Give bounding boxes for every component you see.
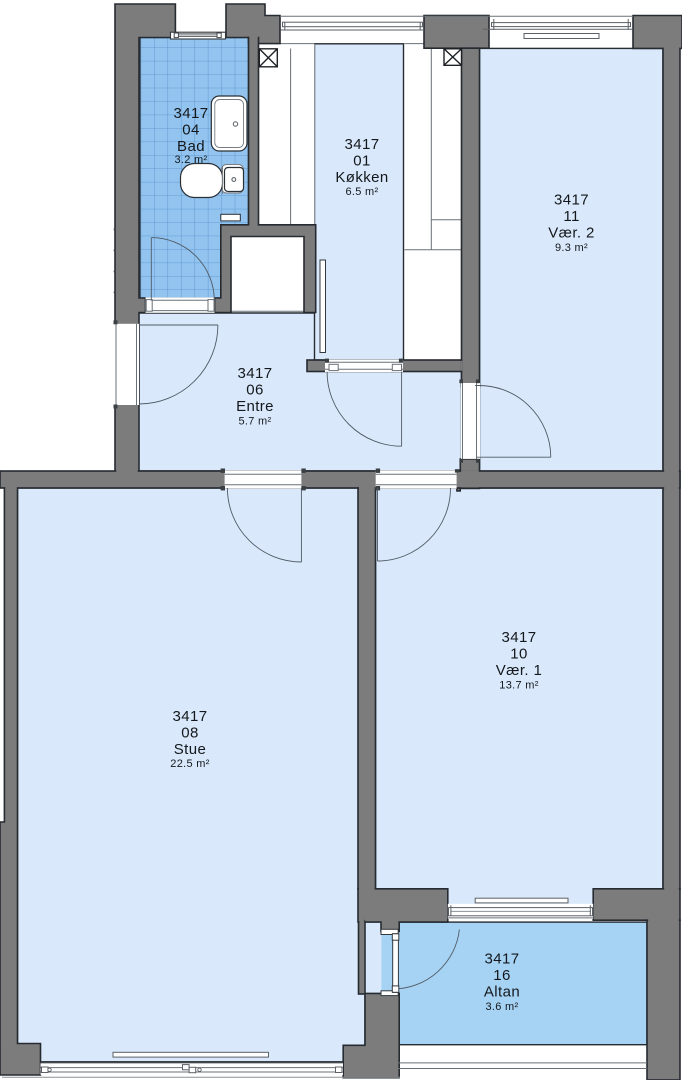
svg-text:3417: 3417 xyxy=(345,136,380,153)
svg-text:Altan: Altan xyxy=(484,984,520,1001)
svg-text:13.7 m²: 13.7 m² xyxy=(499,680,538,692)
svg-text:3417: 3417 xyxy=(502,629,537,646)
svg-text:5.7 m²: 5.7 m² xyxy=(239,416,272,428)
svg-text:3417: 3417 xyxy=(174,105,209,122)
svg-text:22.5 m²: 22.5 m² xyxy=(170,758,209,770)
svg-text:6.5 m²: 6.5 m² xyxy=(346,186,379,198)
svg-text:3.6 m²: 3.6 m² xyxy=(486,1001,519,1013)
svg-text:Vær. 2: Vær. 2 xyxy=(548,225,595,242)
svg-text:9.3 m²: 9.3 m² xyxy=(555,242,588,254)
svg-text:Bad: Bad xyxy=(177,138,205,155)
svg-text:08: 08 xyxy=(181,725,199,742)
svg-text:Køkken: Køkken xyxy=(335,169,388,186)
svg-text:11: 11 xyxy=(563,208,579,225)
svg-text:3.2 m²: 3.2 m² xyxy=(175,154,208,166)
svg-text:Entre: Entre xyxy=(236,398,274,415)
svg-text:16: 16 xyxy=(493,967,511,984)
svg-text:10: 10 xyxy=(510,646,528,663)
svg-text:3417: 3417 xyxy=(238,365,273,382)
svg-text:Vær. 1: Vær. 1 xyxy=(496,662,543,679)
svg-text:04: 04 xyxy=(182,122,200,139)
svg-text:06: 06 xyxy=(246,382,264,399)
svg-text:3417: 3417 xyxy=(173,708,208,725)
svg-text:3417: 3417 xyxy=(554,192,589,209)
svg-text:01: 01 xyxy=(353,153,371,170)
svg-text:Stue: Stue xyxy=(174,741,206,758)
svg-text:3417: 3417 xyxy=(485,951,520,968)
